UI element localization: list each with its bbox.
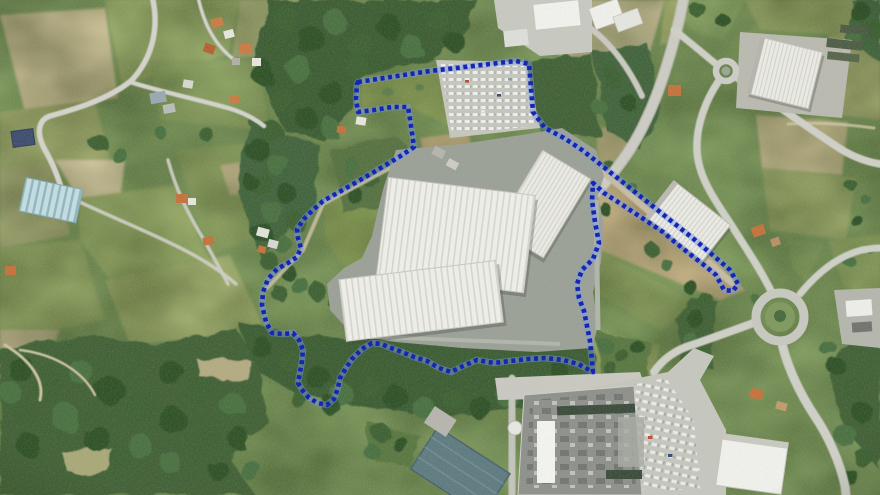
aerial-photo-map: [0, 0, 880, 495]
aerial-map-image: [0, 0, 880, 495]
photo-vignette: [0, 0, 880, 495]
